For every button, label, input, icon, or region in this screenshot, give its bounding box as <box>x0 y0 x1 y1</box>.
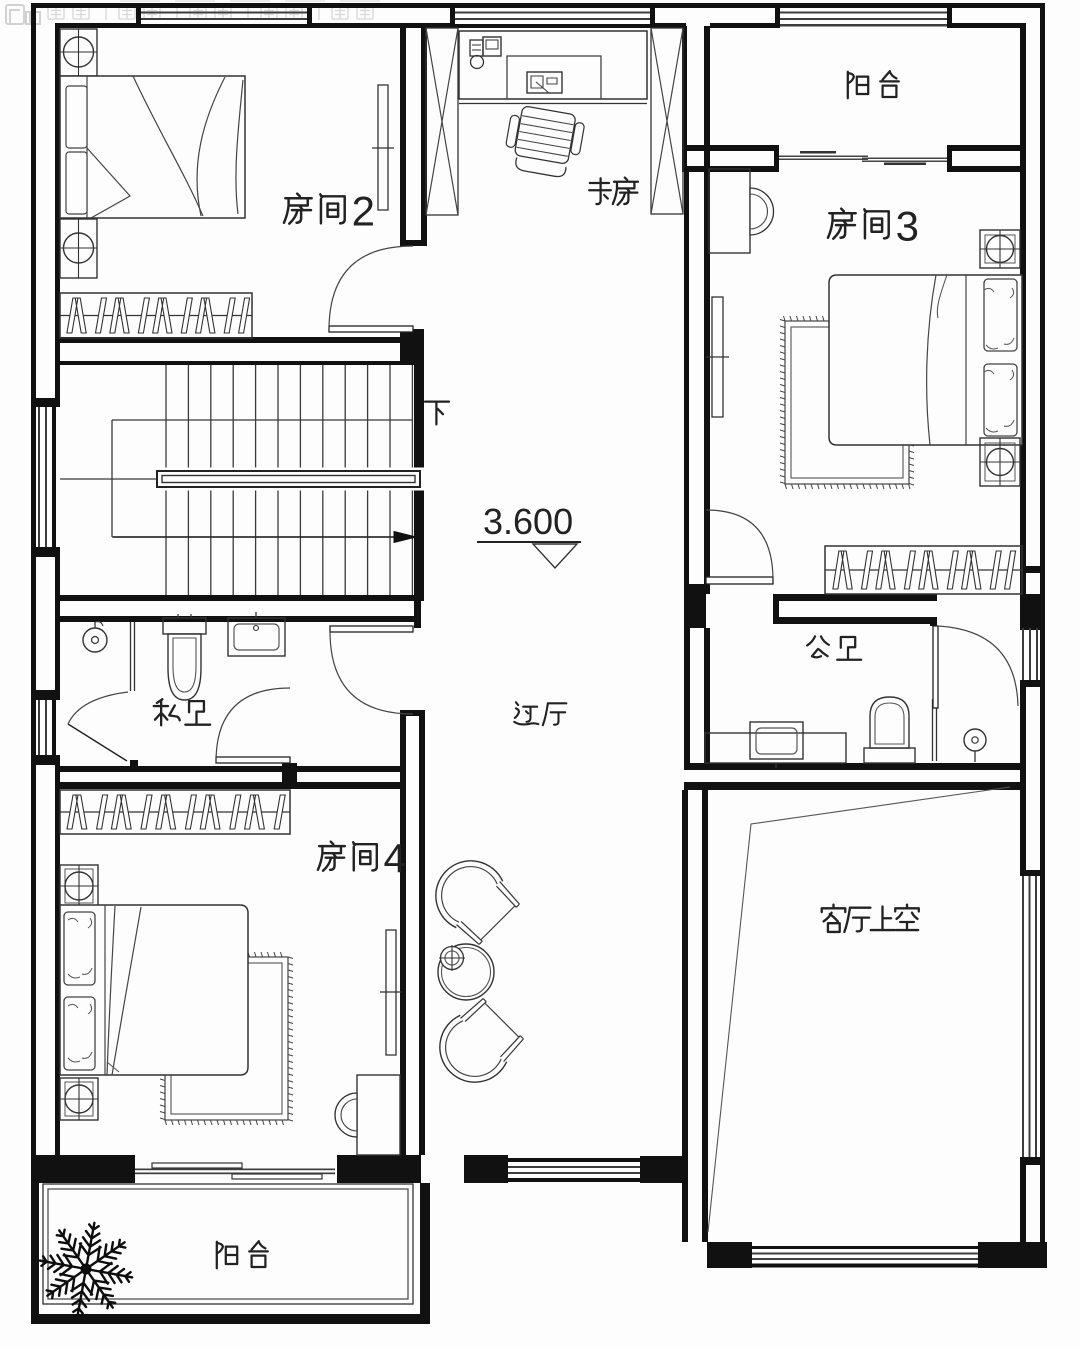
svg-text:4: 4 <box>384 835 407 881</box>
svg-text:3: 3 <box>896 202 919 249</box>
svg-text:2: 2 <box>352 187 375 234</box>
svg-text:3.600: 3.600 <box>483 501 573 542</box>
